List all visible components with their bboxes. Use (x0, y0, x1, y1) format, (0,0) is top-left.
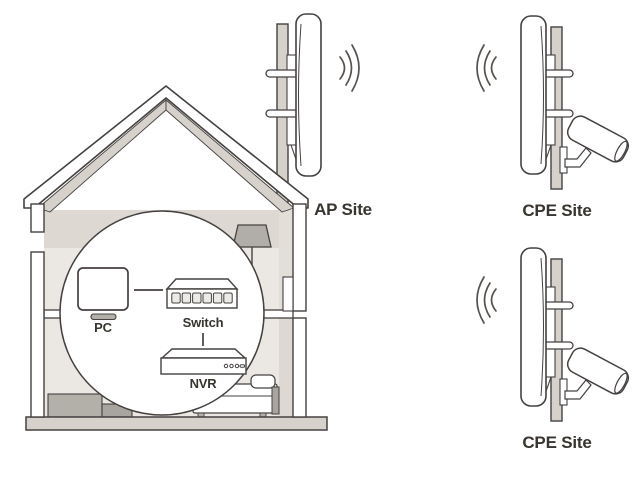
nvr-icon (161, 349, 246, 374)
switch-icon (167, 279, 237, 308)
right-wall-window (283, 277, 293, 311)
cpe-site-top: CPE Site (477, 16, 631, 220)
right-wall-upper (293, 204, 306, 311)
cpe-site-bottom: CPE Site (477, 248, 631, 452)
ground-slab (26, 417, 327, 430)
wall-shadow-lower (279, 318, 293, 417)
security-camera-icon (560, 345, 631, 405)
cpe-site-bottom-label: CPE Site (522, 433, 591, 452)
callout-circle (60, 211, 264, 415)
switch-label: Switch (183, 315, 224, 330)
network-topology-diagram: PC Switch (0, 0, 640, 480)
left-wall-upper (31, 204, 44, 232)
wifi-waves-left-icon (477, 277, 496, 323)
wifi-waves-right-icon (340, 45, 359, 91)
ap-clamp-lower (266, 110, 300, 117)
diagram-svg: PC Switch (0, 0, 640, 480)
cpe-site-top-label: CPE Site (522, 201, 591, 220)
roof-underside-left (38, 100, 166, 212)
indoor-callout: PC Switch (60, 211, 264, 415)
security-camera-icon (560, 113, 631, 173)
wifi-waves-left-icon (477, 45, 496, 91)
nvr-label: NVR (190, 376, 218, 391)
ap-site-label: AP Site (314, 200, 372, 219)
pc-label: PC (94, 320, 112, 335)
ap-clamp-upper (266, 70, 300, 77)
right-wall-lower (293, 318, 306, 417)
left-wall-lower (31, 252, 44, 417)
